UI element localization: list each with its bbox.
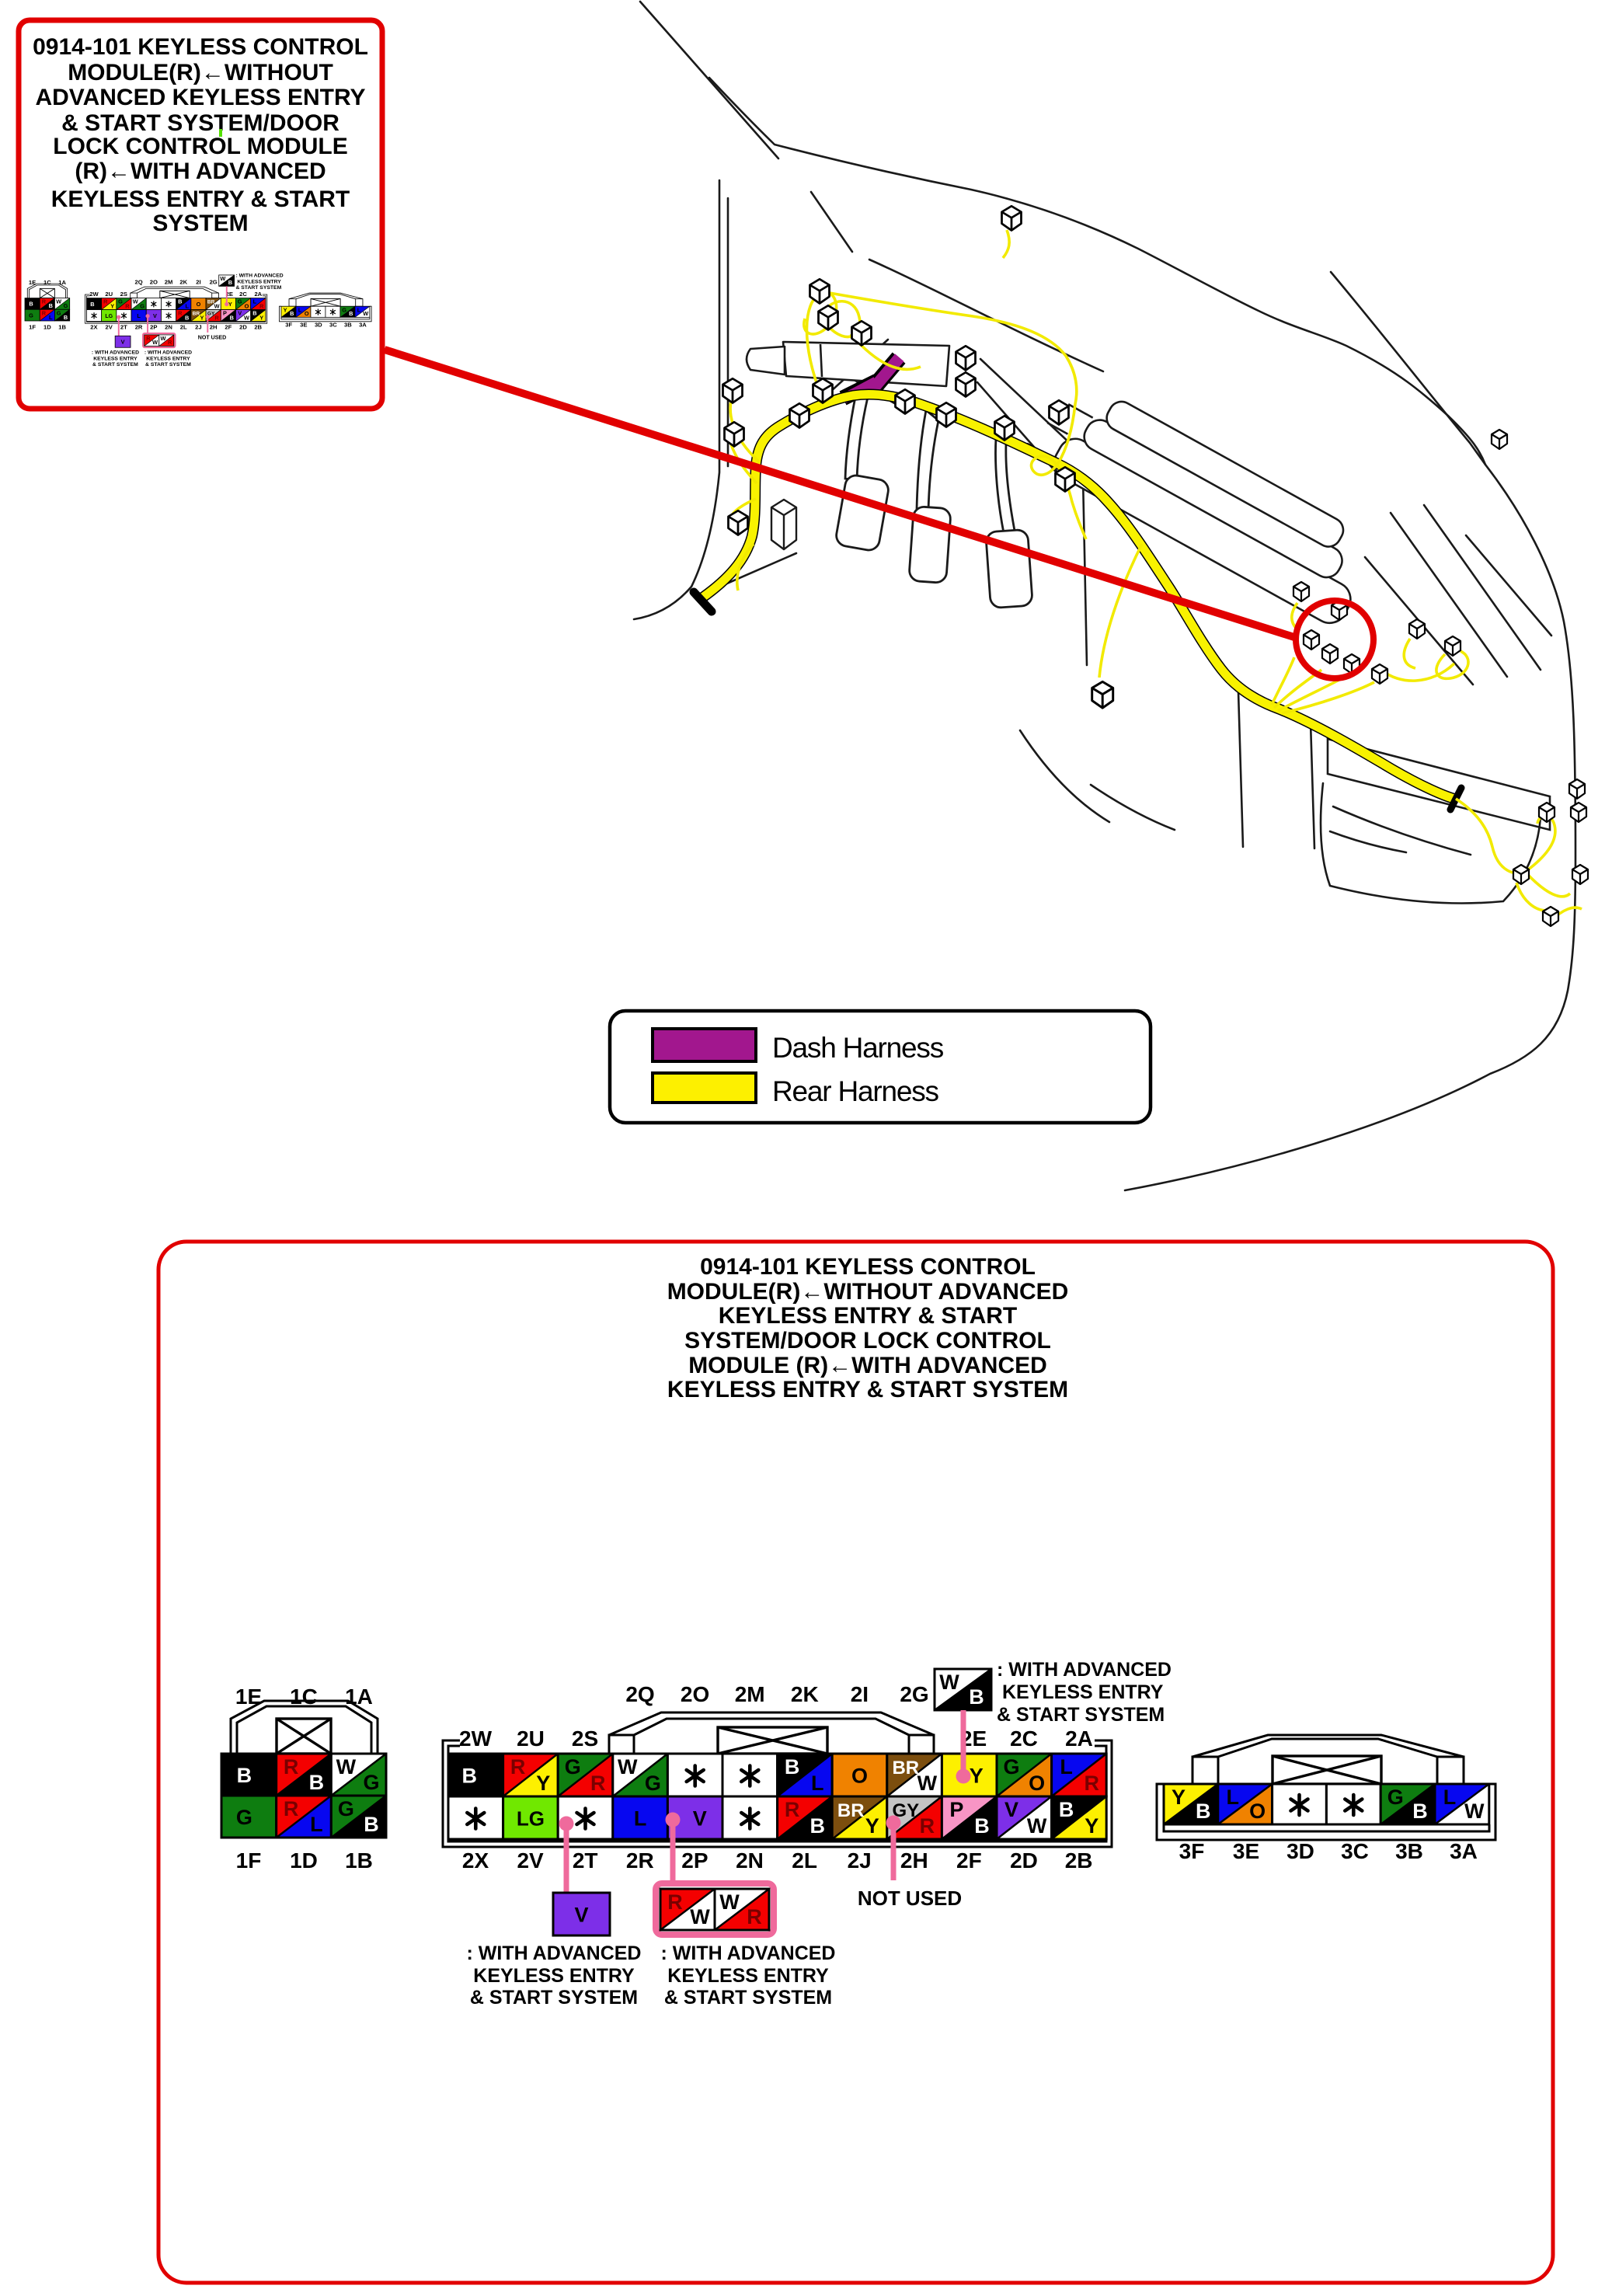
svg-text:KEYLESS ENTRY & START: KEYLESS ENTRY & START xyxy=(51,186,350,212)
svg-text:KEYLESS ENTRY & START SYSTEM: KEYLESS ENTRY & START SYSTEM xyxy=(667,1377,1068,1402)
svg-text:MODULE (R)←WITH ADVANCED: MODULE (R)←WITH ADVANCED xyxy=(688,1353,1047,1378)
svg-text:SYSTEM/DOOR LOCK CONTROL: SYSTEM/DOOR LOCK CONTROL xyxy=(684,1328,1051,1354)
svg-text:MODULE(R)←WITHOUT: MODULE(R)←WITHOUT xyxy=(68,60,333,85)
svg-text:& START SYSTEM/DOOR: & START SYSTEM/DOOR xyxy=(61,110,339,136)
svg-text:Dash Harness: Dash Harness xyxy=(772,1032,944,1064)
svg-text:Rear Harness: Rear Harness xyxy=(772,1075,939,1107)
svg-text:0914-101 KEYLESS CONTROL: 0914-101 KEYLESS CONTROL xyxy=(33,34,368,60)
svg-text:MODULE(R)←WITHOUT ADVANCED: MODULE(R)←WITHOUT ADVANCED xyxy=(667,1279,1069,1305)
svg-text:LOCK CONTROL MODULE: LOCK CONTROL MODULE xyxy=(53,134,347,159)
svg-text:SYSTEM: SYSTEM xyxy=(152,211,248,236)
svg-text:ADVANCED KEYLESS ENTRY: ADVANCED KEYLESS ENTRY xyxy=(35,85,365,110)
svg-text:(R)←WITH ADVANCED: (R)←WITH ADVANCED xyxy=(75,159,326,184)
svg-text:0914-101 KEYLESS CONTROL: 0914-101 KEYLESS CONTROL xyxy=(700,1254,1036,1280)
svg-text:KEYLESS ENTRY & START: KEYLESS ENTRY & START xyxy=(719,1303,1018,1329)
